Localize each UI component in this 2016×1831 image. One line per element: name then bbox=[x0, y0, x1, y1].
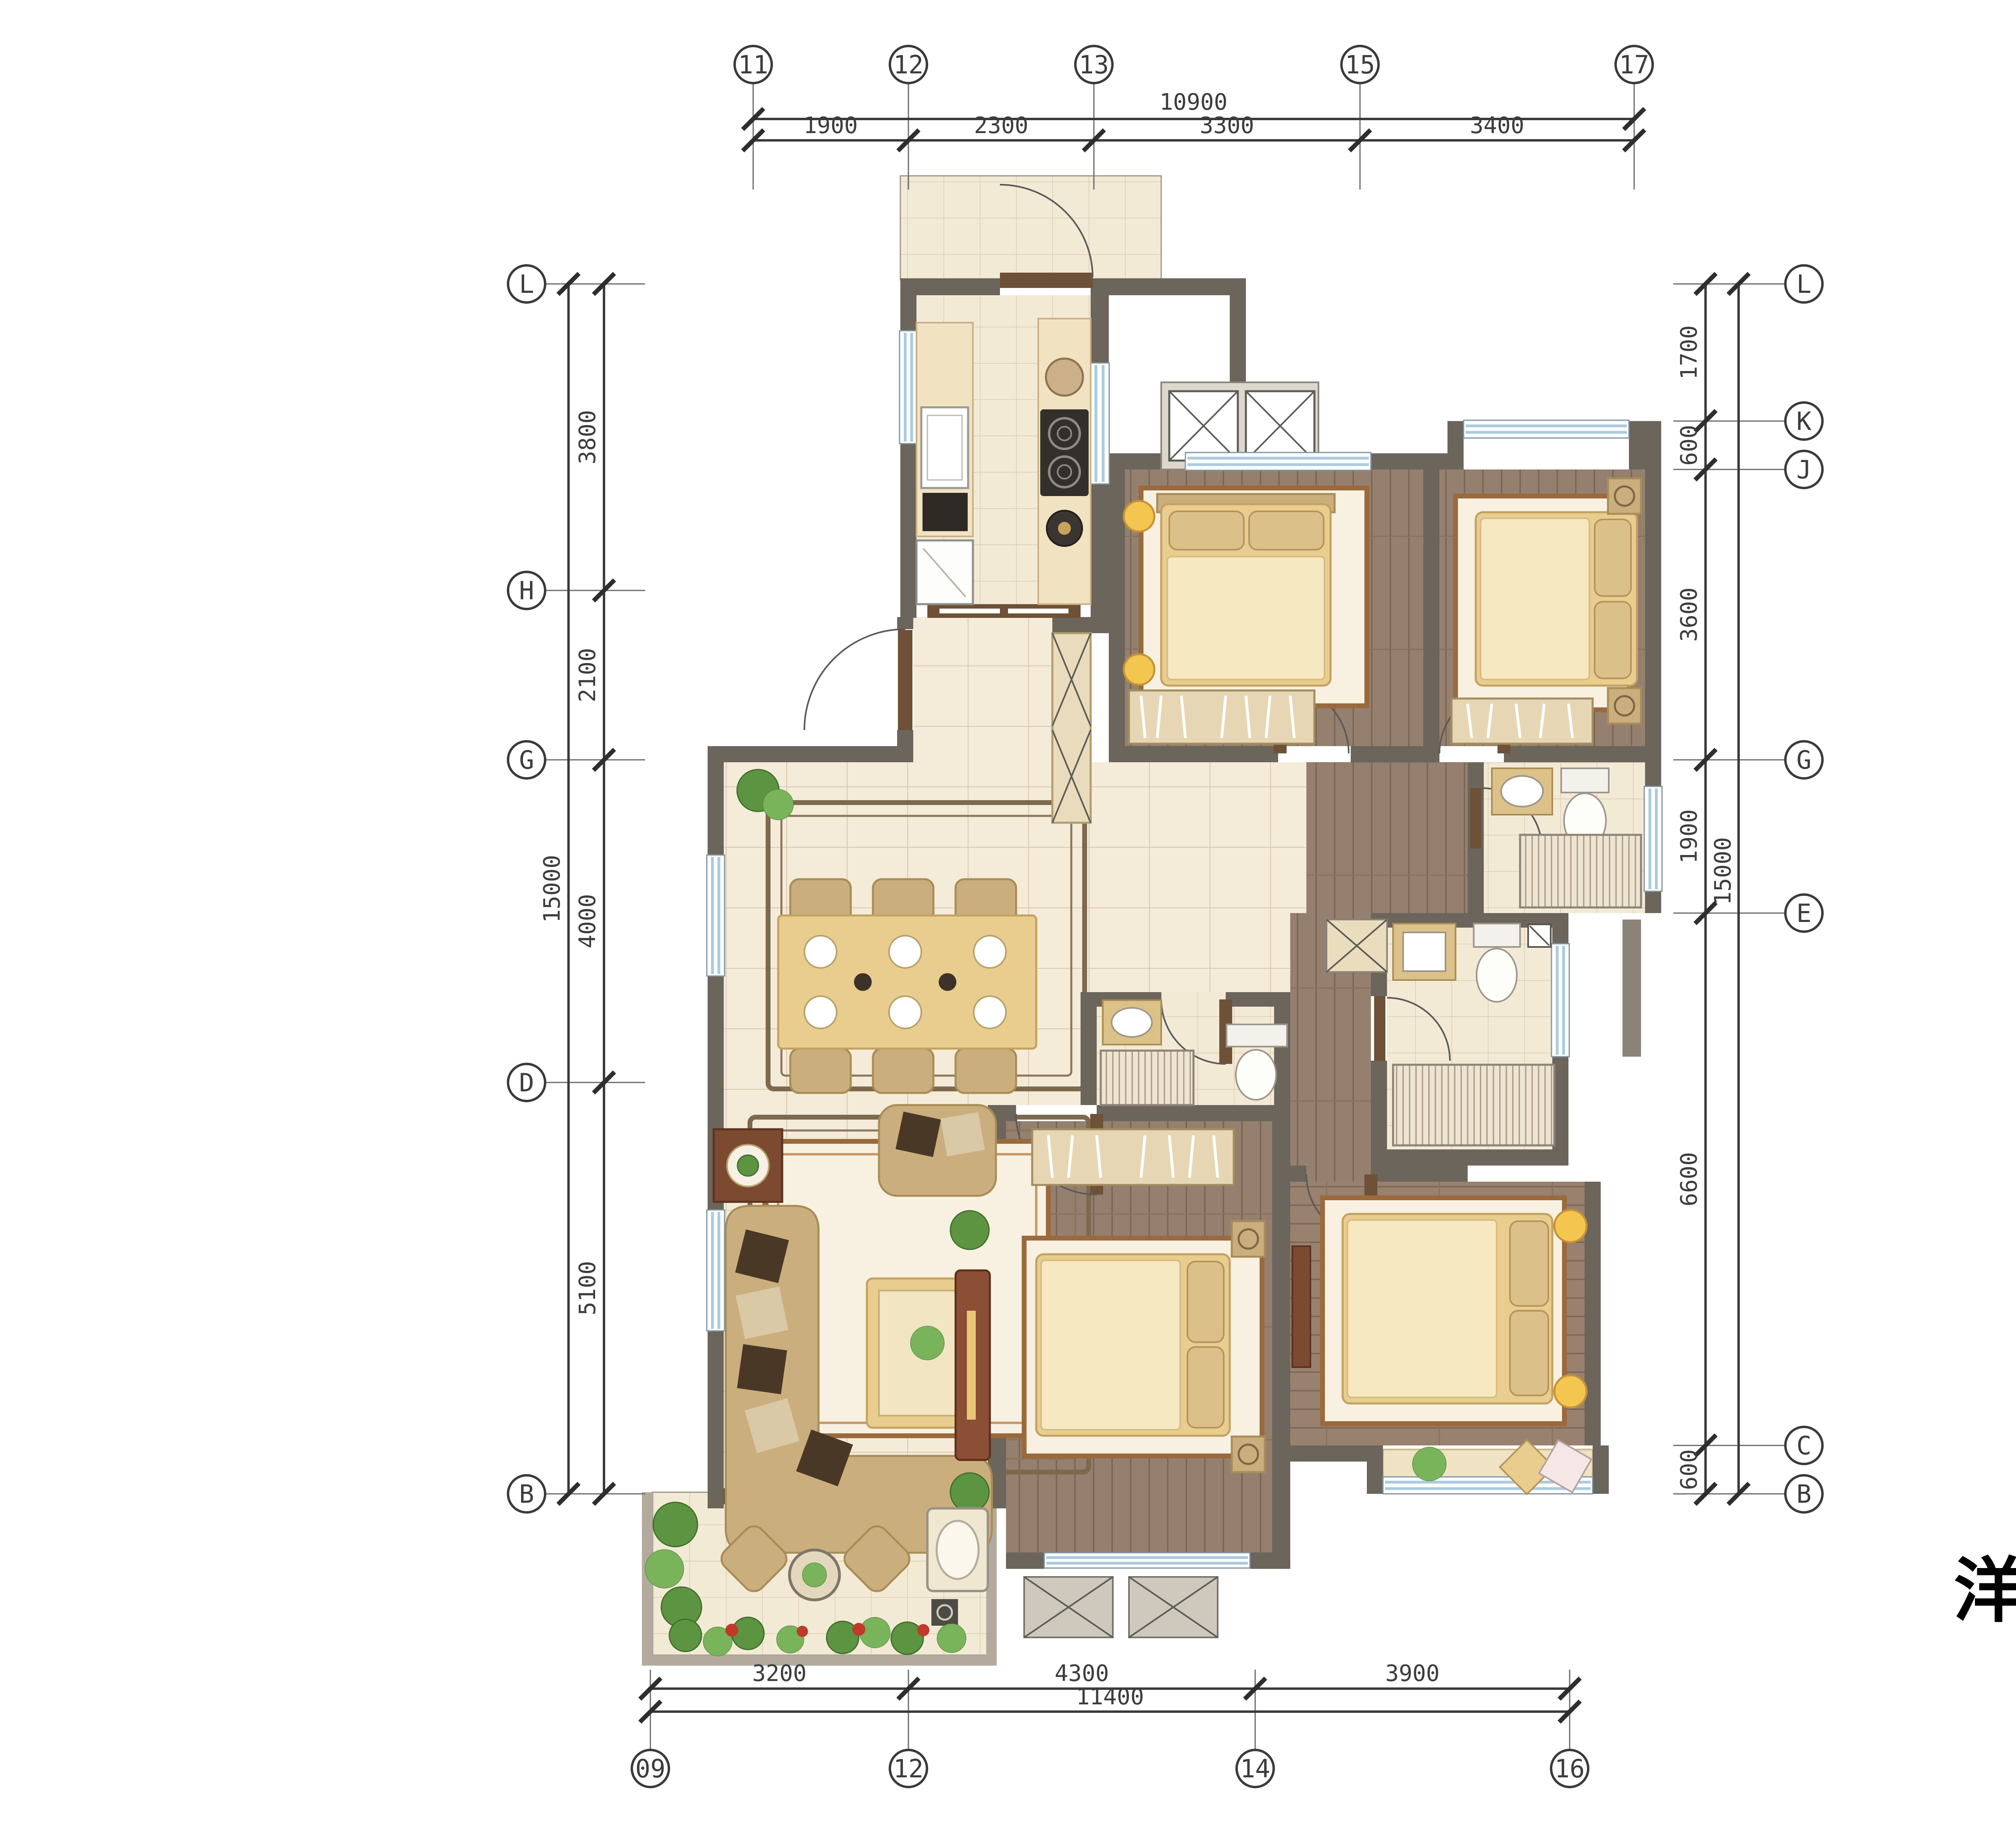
toilet-tank bbox=[1474, 924, 1520, 947]
axis-label-top: 11 bbox=[738, 50, 768, 79]
bath2-window bbox=[1644, 786, 1662, 891]
quilt bbox=[1167, 557, 1325, 680]
bedroom-a bbox=[1124, 488, 1367, 744]
dim-right-seg: 6600 bbox=[1676, 1152, 1702, 1207]
axis-label-bottom: 16 bbox=[1555, 1754, 1585, 1783]
gas-stove bbox=[1040, 409, 1089, 496]
dim-left-seg: 3800 bbox=[575, 410, 601, 465]
kitchen-sliding-door bbox=[927, 604, 1081, 618]
pillow bbox=[1595, 602, 1631, 678]
dim-top-seg: 3400 bbox=[1470, 113, 1524, 139]
toilet-tank bbox=[1227, 1024, 1287, 1047]
bedside-lamp bbox=[1124, 654, 1154, 685]
dim-right-seg: 600 bbox=[1676, 425, 1702, 465]
tv bbox=[967, 1311, 976, 1420]
dim-left-seg: 4000 bbox=[575, 894, 601, 949]
axis-label-top: 17 bbox=[1619, 50, 1649, 79]
dining-chair bbox=[790, 1049, 851, 1093]
quilt bbox=[1347, 1220, 1497, 1397]
shower bbox=[1393, 1065, 1554, 1145]
table-decor bbox=[854, 973, 872, 991]
dresser bbox=[1292, 1246, 1310, 1367]
axis-label-right: E bbox=[1796, 899, 1811, 928]
quilt bbox=[1481, 518, 1589, 680]
shower bbox=[1101, 1051, 1193, 1105]
wardrobe-c bbox=[1032, 1129, 1234, 1185]
dim-right-seg: 1900 bbox=[1676, 809, 1702, 864]
dim-left-seg: 5100 bbox=[575, 1261, 601, 1316]
master-bath-window bbox=[1552, 944, 1569, 1057]
duct-shaft-mid bbox=[1327, 920, 1387, 972]
axis-label-right: J bbox=[1796, 455, 1811, 484]
kitchen-sink bbox=[921, 407, 968, 488]
corridor-floor-1 bbox=[1306, 762, 1468, 913]
place-setting bbox=[804, 996, 837, 1028]
sink bbox=[1403, 932, 1445, 971]
pillow bbox=[1187, 1262, 1224, 1342]
plan-title: 洋房A1 bbox=[1954, 1549, 2016, 1632]
dimension-top: 10900 1900 2300 3300 3400 bbox=[743, 83, 1645, 190]
place-setting bbox=[974, 936, 1006, 968]
kitchen-window-left bbox=[900, 331, 917, 444]
dining-chair bbox=[956, 1049, 1016, 1093]
place-setting bbox=[889, 996, 921, 1028]
axis-label-bottom: 14 bbox=[1240, 1754, 1270, 1783]
nightstand bbox=[1608, 688, 1641, 724]
axis-label-left: L bbox=[519, 269, 534, 299]
sofa-pillow bbox=[736, 1287, 788, 1339]
dim-bottom-overall: 11400 bbox=[1076, 1684, 1144, 1710]
dim-bottom-seg: 4300 bbox=[1055, 1660, 1109, 1687]
bedside-lamp bbox=[1554, 1210, 1587, 1242]
entry-door bbox=[804, 629, 912, 730]
bedroom-c-window bbox=[1044, 1553, 1250, 1568]
dim-bottom-seg: 3200 bbox=[752, 1660, 807, 1687]
dimension-bottom: 3200 4300 3900 11400 bbox=[640, 1660, 1580, 1751]
dimension-left: 15000 3800 2100 4000 5100 bbox=[539, 273, 645, 1504]
axis-label-left: D bbox=[519, 1068, 534, 1097]
shoe-cabinet bbox=[1052, 633, 1091, 823]
pillow bbox=[1169, 511, 1244, 550]
nightstand bbox=[1608, 478, 1641, 514]
coffee-table-plant bbox=[910, 1326, 944, 1360]
pillow bbox=[1249, 511, 1324, 550]
axis-label-top: 15 bbox=[1345, 50, 1375, 79]
axis-label-top: 12 bbox=[893, 50, 924, 79]
toilet-bowl bbox=[1236, 1050, 1276, 1100]
bedroom-b-bay-window bbox=[1464, 420, 1629, 438]
floor-drain bbox=[931, 1599, 958, 1626]
bay-plant bbox=[1412, 1447, 1446, 1481]
dim-right-seg: 3600 bbox=[1676, 588, 1702, 642]
cushion bbox=[896, 1112, 941, 1157]
shower bbox=[1520, 835, 1641, 907]
place-setting bbox=[804, 936, 837, 968]
axis-label-bottom: 09 bbox=[635, 1754, 666, 1783]
pillow bbox=[1187, 1347, 1224, 1428]
table-decor bbox=[939, 973, 956, 991]
sofa-pillow bbox=[737, 1344, 787, 1394]
floorplan-drawing: 10900 1900 2300 3300 3400 3200 4300 3900… bbox=[0, 0, 2016, 1831]
wardrobe-a bbox=[1129, 690, 1314, 744]
axis-label-right: G bbox=[1796, 745, 1811, 775]
kitchen-window-right bbox=[1090, 363, 1109, 484]
toilet-tank bbox=[1561, 768, 1609, 792]
sink bbox=[1501, 776, 1543, 807]
living-window bbox=[707, 1210, 725, 1331]
bedside-lamp bbox=[1124, 501, 1154, 532]
wardrobe-b bbox=[1452, 699, 1593, 744]
ac-platform-1 bbox=[1024, 1577, 1113, 1637]
shaft-box-1 bbox=[1169, 391, 1238, 461]
dimension-right: 1700 600 3600 1900 6600 600 15000 bbox=[1673, 273, 1785, 1504]
axis-label-right: B bbox=[1796, 1479, 1811, 1509]
sink bbox=[1112, 1008, 1152, 1037]
cushion bbox=[941, 1112, 985, 1156]
living-plant-2 bbox=[950, 1473, 989, 1512]
axis-label-left: H bbox=[519, 576, 534, 605]
dining-window bbox=[707, 855, 725, 976]
axis-label-left: G bbox=[519, 745, 534, 775]
axis-label-bottom: 12 bbox=[893, 1754, 924, 1783]
bedside-lamp bbox=[1554, 1375, 1587, 1408]
dim-top-seg: 3300 bbox=[1200, 113, 1254, 139]
axis-label-right: C bbox=[1796, 1431, 1811, 1460]
dim-left-seg: 2100 bbox=[575, 648, 601, 703]
dim-top-seg: 1900 bbox=[804, 113, 858, 139]
shaft-box-2 bbox=[1246, 391, 1314, 461]
bedroom-a-window bbox=[1185, 453, 1371, 470]
nightstand bbox=[1232, 1221, 1265, 1257]
dim-top-overall: 10900 bbox=[1160, 89, 1228, 115]
dim-right-seg: 600 bbox=[1676, 1449, 1702, 1490]
ac-platform-2 bbox=[1129, 1577, 1218, 1637]
dim-right-overall: 15000 bbox=[1710, 837, 1736, 905]
hall-floor-2 bbox=[1091, 762, 1306, 992]
pillow bbox=[1510, 1221, 1548, 1306]
dim-left-overall: 15000 bbox=[539, 855, 565, 923]
pillow bbox=[1595, 519, 1631, 596]
nightstand bbox=[1232, 1437, 1265, 1472]
place-setting bbox=[974, 996, 1006, 1028]
axis-label-top: 13 bbox=[1079, 50, 1109, 79]
living-plant-1 bbox=[950, 1211, 989, 1249]
axis-label-left: B bbox=[519, 1479, 534, 1509]
dim-top-seg: 2300 bbox=[974, 113, 1029, 139]
dim-bottom-seg: 3900 bbox=[1385, 1660, 1440, 1687]
pot bbox=[1046, 359, 1083, 396]
entry-porch-floor bbox=[900, 176, 1161, 280]
toilet-bowl bbox=[1477, 949, 1517, 1002]
quilt bbox=[1041, 1260, 1180, 1430]
pillow bbox=[1510, 1311, 1548, 1395]
built-in-oven bbox=[923, 493, 968, 531]
bedroom-b bbox=[1452, 478, 1641, 744]
bedroom-c bbox=[1024, 1129, 1265, 1472]
place-setting bbox=[889, 936, 921, 968]
floorplan-page: 10900 1900 2300 3300 3400 3200 4300 3900… bbox=[0, 0, 2016, 1831]
axis-label-right: K bbox=[1796, 407, 1812, 436]
dim-right-seg: 1700 bbox=[1676, 325, 1702, 380]
axis-label-right: L bbox=[1796, 269, 1811, 299]
dining-chair bbox=[873, 1049, 933, 1093]
